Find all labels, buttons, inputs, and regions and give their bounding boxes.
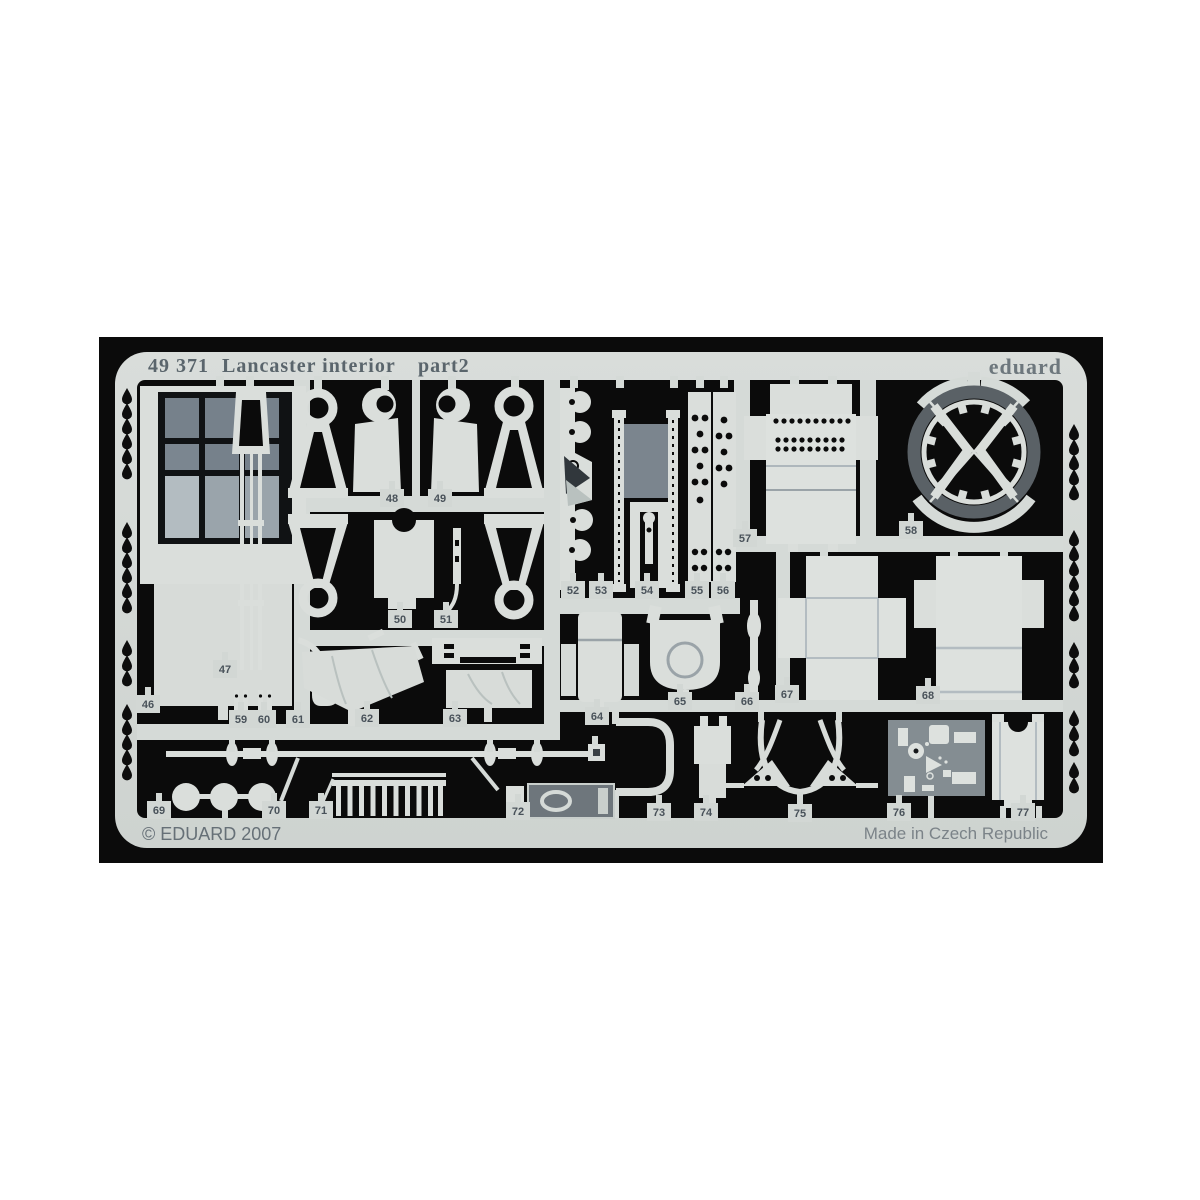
sheet-part: part2	[418, 355, 470, 377]
part-number-48: 48	[386, 493, 398, 505]
part-number-51: 51	[440, 614, 452, 626]
part-number-67: 67	[781, 689, 793, 701]
part-number-49: 49	[434, 493, 446, 505]
part-number-73: 73	[653, 807, 665, 819]
part-number-59: 59	[235, 714, 247, 726]
part-number-50: 50	[394, 614, 406, 626]
part-number-46: 46	[142, 699, 154, 711]
fret: 4647484950515253545556575859606162636465…	[115, 352, 1087, 848]
part-number-64: 64	[591, 711, 604, 723]
part-50	[374, 508, 434, 609]
part-number-77: 77	[1017, 807, 1029, 819]
part-number-52: 52	[567, 585, 579, 597]
part-number-63: 63	[449, 713, 461, 725]
part-number-70: 70	[268, 805, 280, 817]
part-55	[688, 392, 711, 582]
part-number-61: 61	[292, 714, 304, 726]
part-number-76: 76	[893, 807, 905, 819]
photo-etch-fret-illustration: 4647484950515253545556575859606162636465…	[0, 0, 1200, 1200]
part-number-74: 74	[700, 807, 713, 819]
brand-logo: eduard	[989, 354, 1062, 379]
part-number-71: 71	[315, 805, 327, 817]
part-number-68: 68	[922, 690, 934, 702]
part-number-65: 65	[674, 696, 686, 708]
part-74	[694, 716, 731, 806]
part-69	[172, 783, 276, 811]
part-number-53: 53	[595, 585, 607, 597]
half-etched-panel	[624, 424, 668, 498]
part-number-47: 47	[219, 664, 231, 676]
part-number-72: 72	[512, 806, 524, 818]
part-number-66: 66	[741, 696, 753, 708]
sheet-code: 49 371	[148, 355, 209, 377]
part-56	[713, 392, 736, 582]
part-77	[992, 712, 1044, 808]
product-photo: 4647484950515253545556575859606162636465…	[0, 0, 1200, 1200]
part-number-60: 60	[258, 714, 270, 726]
part-number-75: 75	[794, 808, 806, 820]
part-number-69: 69	[153, 805, 165, 817]
copyright-text: © EDUARD 2007	[142, 824, 281, 844]
part-number-56: 56	[717, 585, 729, 597]
made-in-text: Made in Czech Republic	[864, 824, 1049, 843]
part-76	[888, 720, 985, 796]
part-number-55: 55	[691, 585, 703, 597]
part-number-54: 54	[641, 585, 654, 597]
part-number-58: 58	[905, 525, 917, 537]
part-number-57: 57	[739, 533, 751, 545]
sheet-title: Lancaster interior	[222, 355, 396, 377]
part-number-62: 62	[361, 713, 373, 725]
